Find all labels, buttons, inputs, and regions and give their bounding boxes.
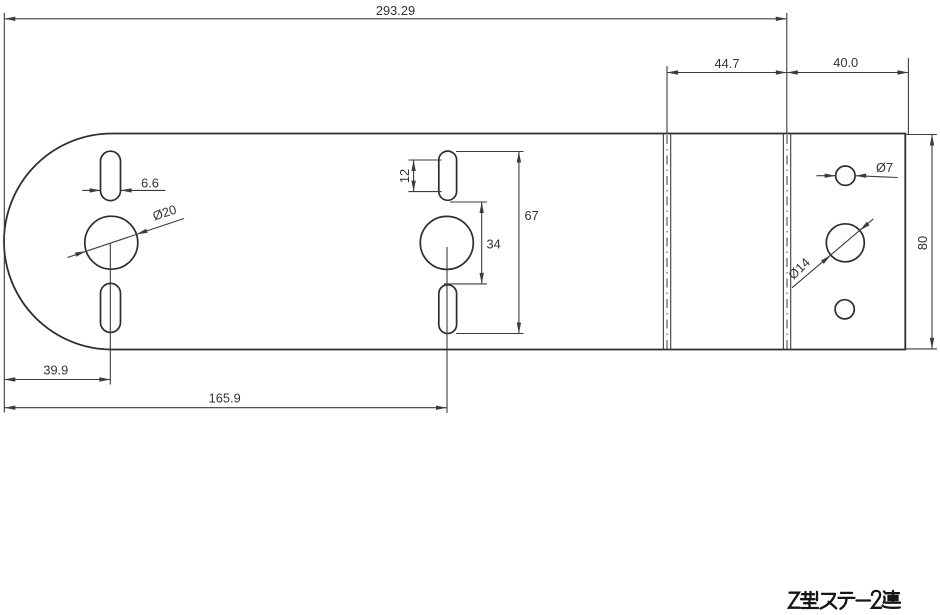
svg-text:34: 34	[487, 236, 501, 251]
svg-text:Ø20: Ø20	[151, 202, 179, 224]
svg-text:293.29: 293.29	[376, 3, 415, 18]
svg-text:Ø7: Ø7	[876, 160, 893, 175]
svg-text:6.6: 6.6	[141, 176, 159, 191]
svg-text:39.9: 39.9	[43, 363, 68, 378]
svg-text:44.7: 44.7	[715, 56, 740, 71]
svg-text:12: 12	[397, 169, 412, 183]
svg-text:67: 67	[525, 208, 539, 223]
svg-text:165.9: 165.9	[209, 391, 241, 406]
svg-text:Ø14: Ø14	[785, 255, 813, 283]
svg-text:40.0: 40.0	[833, 55, 858, 70]
svg-text:80: 80	[915, 236, 930, 250]
